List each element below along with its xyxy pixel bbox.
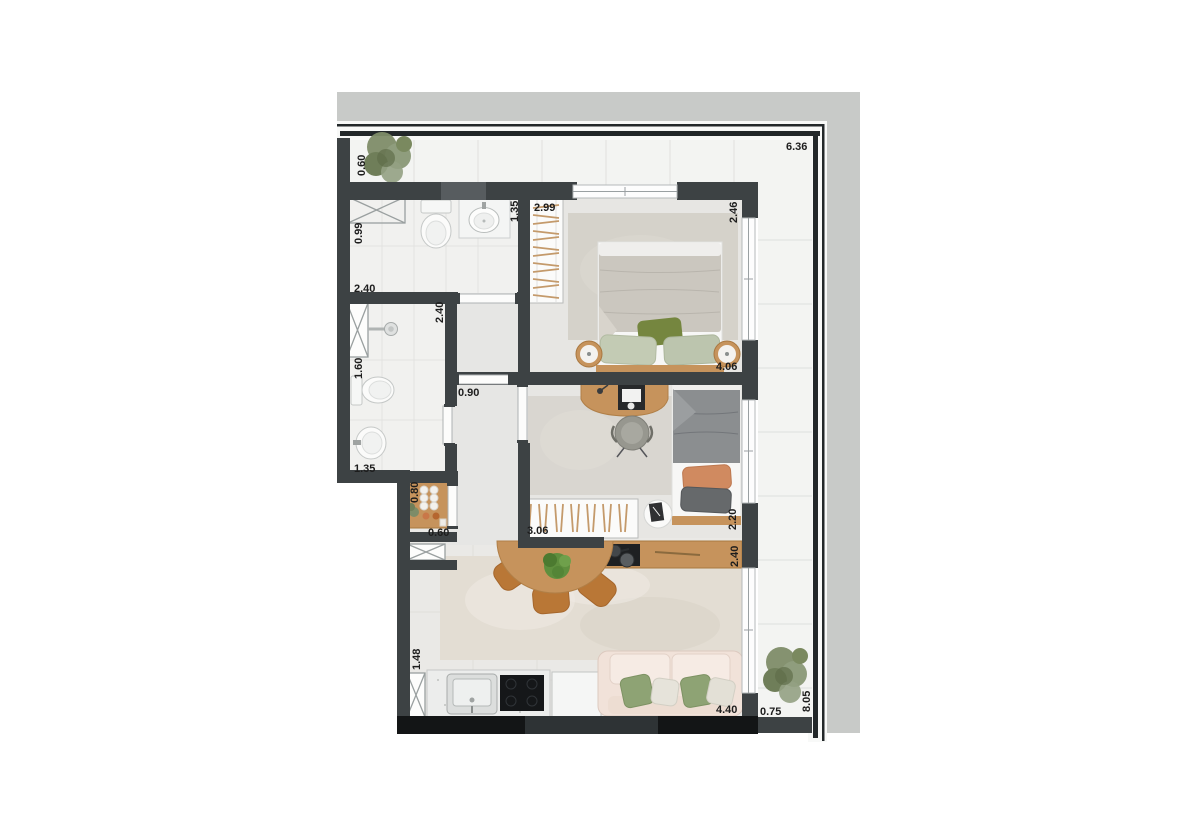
wall-bottom-black-right [658,716,758,734]
dim-bedroom2-depth: 2.20 [727,509,739,530]
concrete-top-band [337,92,859,121]
cabinet [552,672,601,719]
wall-bottom-black-left [397,716,525,734]
window-bedroom1-top [573,185,677,198]
dim-kitchen-left: 1.48 [411,649,423,670]
door-entry [447,483,458,529]
wall-left [337,138,350,483]
dim-bath1-width: 2.40 [354,283,375,295]
window-bedroom2-right [742,400,755,503]
wall-kitchen-divider [518,537,604,548]
dim-bath1-right: 1.35 [509,201,521,222]
sofa-pillow-green [619,673,655,709]
side-table [644,500,672,528]
dim-terrace-depth-bottom: 0.75 [760,706,781,718]
dim-terrace-depth-top: 0.60 [356,155,368,176]
shaft [407,544,445,560]
dim-entry-width: 0.60 [428,527,449,539]
cooktop [500,675,544,711]
floor-plan: 0.60 6.36 0.99 2.40 1.35 2.99 2.46 2.40 … [0,0,1200,840]
walls-dark [397,716,758,734]
dim-entry-console: 0.80 [409,482,421,503]
pillow-sage [663,335,720,366]
wall-entry-bottom [400,560,457,570]
double-bed [596,242,724,374]
door-hall [456,374,511,385]
floor-hall [445,293,530,545]
wall-left-lower [397,470,410,722]
door-bedroom2 [517,384,528,443]
wall-bath2-east [445,303,457,406]
dim-hall-top: 2.40 [434,302,446,323]
wall-top-light-segment [441,182,486,200]
wardrobe [529,199,563,303]
dim-bedroom1-width: 4.06 [716,361,737,373]
dim-living-width: 4.40 [716,704,737,716]
dim-bath2-left: 1.60 [353,358,365,379]
trim-right-thick [813,131,818,738]
kitchen-counter [427,670,601,719]
concrete-right-band [827,92,860,733]
rug-texture [540,410,620,470]
shaft [347,303,368,357]
vanity-sink [459,199,510,238]
pillow-gray [680,487,731,514]
terrace-floor-right [758,186,812,717]
sofa-pillow-white [650,677,679,706]
trim-right-thin [822,124,825,741]
dim-bedroom1-depth: 2.46 [728,202,740,223]
toilet [351,376,394,405]
dim-terrace-length-right: 8.05 [801,691,813,712]
dim-bath1-left: 0.99 [353,223,365,244]
door-bath1 [457,293,518,304]
wall-right-1 [742,182,758,218]
nightstand [576,341,602,367]
trim-top-thick [340,131,820,136]
dim-bath2-bottom: 1.35 [354,463,375,475]
wall-terrace-bottom [758,717,812,733]
sofa-pillow-white [706,677,737,708]
single-bed [672,378,741,525]
toilet [421,200,451,248]
dim-closet1-width: 2.99 [534,202,555,214]
sliding-door-living [742,568,755,693]
kitchen-sink [447,674,497,714]
wall-right-4 [742,693,758,719]
dim-closet2-width: 3.06 [527,525,548,537]
dim-hall-width: 0.90 [458,387,479,399]
wall-right-2 [742,340,758,400]
terrace-floor-top [350,140,812,186]
floor-plan-canvas: 0.60 6.36 0.99 2.40 1.35 2.99 2.46 2.40 … [0,0,1200,840]
dim-kitchen-island: 2.40 [729,546,741,567]
wall-right-3 [742,503,758,568]
dim-terrace-length-top: 6.36 [786,141,807,153]
window-bedroom1-right [742,218,755,340]
kitchen-island [603,541,742,568]
pillow-sage [599,335,656,366]
trim-top-white [337,121,825,140]
trim-top-thin [337,124,824,127]
